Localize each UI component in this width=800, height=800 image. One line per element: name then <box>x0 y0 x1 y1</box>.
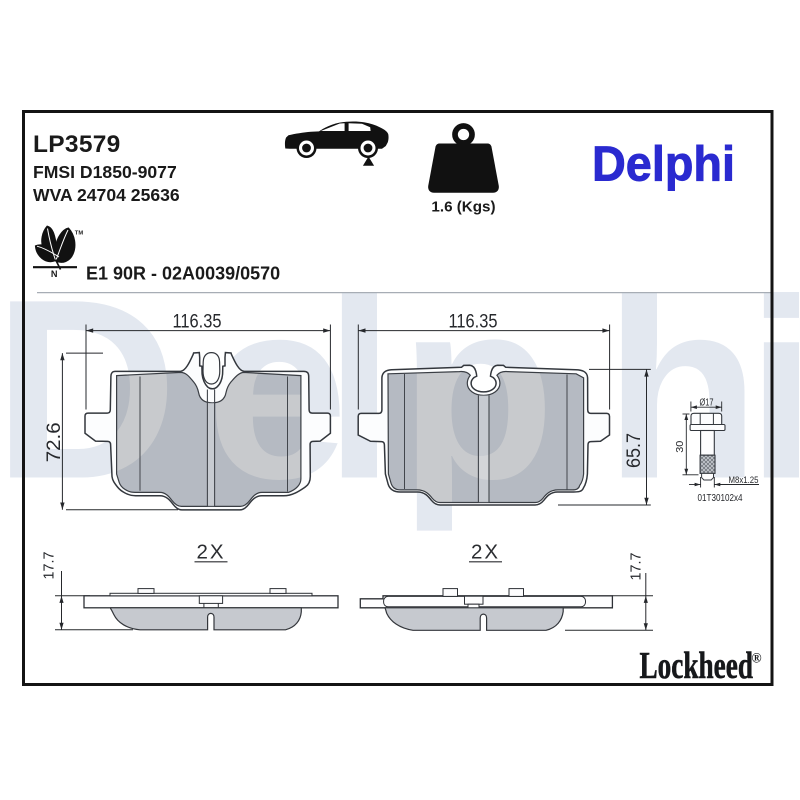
svg-text:Ø17: Ø17 <box>700 397 714 408</box>
svg-text:17.7: 17.7 <box>41 552 58 580</box>
svg-text:TM: TM <box>75 230 84 236</box>
svg-text:116.35: 116.35 <box>173 311 222 332</box>
svg-text:1.6 (Kgs): 1.6 (Kgs) <box>431 198 495 215</box>
svg-text:30: 30 <box>674 441 686 453</box>
svg-text:N: N <box>51 269 58 279</box>
svg-text:2X: 2X <box>196 541 225 564</box>
svg-text:17.7: 17.7 <box>628 553 645 581</box>
svg-text:65.7: 65.7 <box>624 433 645 468</box>
svg-text:FMSI D1850-9077: FMSI D1850-9077 <box>33 162 177 182</box>
svg-text:E1 90R - 02A0039/0570: E1 90R - 02A0039/0570 <box>86 264 280 284</box>
svg-text:Delphi: Delphi <box>592 137 735 192</box>
svg-text:®: ® <box>752 651 762 666</box>
svg-text:2X: 2X <box>471 541 500 564</box>
svg-text:72.6: 72.6 <box>44 422 65 462</box>
svg-text:Lockheed: Lockheed <box>640 645 754 687</box>
svg-text:LP3579: LP3579 <box>33 131 121 158</box>
svg-text:WVA 24704 25636: WVA 24704 25636 <box>33 185 180 205</box>
svg-text:M8x1.25: M8x1.25 <box>729 475 759 486</box>
svg-text:01T30102x4: 01T30102x4 <box>698 493 743 504</box>
svg-text:116.35: 116.35 <box>449 311 498 332</box>
